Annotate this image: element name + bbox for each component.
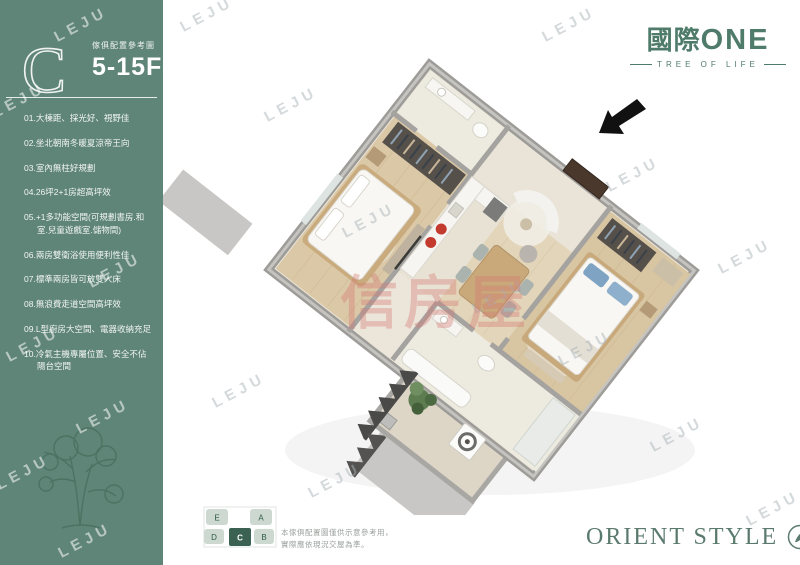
keyplan: E A D C B xyxy=(202,501,278,551)
feature-item: 08.無浪費走道空間高坪效 xyxy=(24,298,152,311)
disclaimer-line: 本傢俱配置圖僅供示意參考用， xyxy=(281,527,393,539)
divider xyxy=(6,97,157,98)
tagline-rule xyxy=(630,64,652,65)
tree-illustration-icon xyxy=(16,412,148,530)
feature-item: 05.+1多功能空間(可規劃書房.和室.兒童遊戲室.儲物間) xyxy=(24,211,152,237)
feature-item: 01.大棟距、採光好、視野佳 xyxy=(24,112,152,125)
leaf-badge-icon xyxy=(786,523,800,551)
floorplan-3d xyxy=(160,5,800,515)
disclaimer: 本傢俱配置圖僅供示意參考用， 實際應依現況交屋為準。 xyxy=(281,527,393,551)
keyplan-unit-d: D xyxy=(211,533,217,542)
plan-floors: 5-15F xyxy=(92,53,162,82)
disclaimer-line: 實際應依現況交屋為準。 xyxy=(281,539,393,551)
keyplan-unit-e: E xyxy=(214,514,219,523)
plan-header: 傢俱配置參考圖 5-15F xyxy=(92,40,162,82)
keyplan-unit-c-highlighted: C xyxy=(237,534,243,543)
feature-item: 06.兩房雙衛浴使用便利性佳 xyxy=(24,249,152,262)
feature-item: 07.標準兩房皆可放雙人床 xyxy=(24,273,152,286)
feature-item: 03.室內無柱好規劃 xyxy=(24,162,152,175)
tagline-rule xyxy=(764,64,786,65)
feature-item: 02.坐北朝南冬暖夏涼帝王向 xyxy=(24,137,152,150)
brand-en: ONE xyxy=(701,24,770,56)
brand-tagline: TREE OF LIFE xyxy=(630,60,786,69)
side-slab xyxy=(160,170,252,256)
brand-name: 國際ONE xyxy=(630,20,786,57)
tagline-text: TREE OF LIFE xyxy=(657,60,759,69)
keyplan-unit-b: B xyxy=(261,533,266,542)
footer-brand: ORIENT STYLE xyxy=(586,523,800,551)
footer-brand-text: ORIENT STYLE xyxy=(586,524,778,551)
feature-item: 09.L型廚房大空間、電器收納充足 xyxy=(24,323,152,336)
brand-logo: 國際ONE TREE OF LIFE xyxy=(630,20,786,69)
feature-list: 01.大棟距、採光好、視野佳 02.坐北朝南冬暖夏涼帝王向 03.室內無柱好規劃… xyxy=(24,112,152,385)
feature-item: 10.冷氣主機專屬位置、安全不佔陽台空間 xyxy=(24,348,152,374)
flyer-page: C 傢俱配置參考圖 5-15F 01.大棟距、採光好、視野佳 02.坐北朝南冬暖… xyxy=(0,0,800,565)
entry-arrow-icon xyxy=(599,99,646,134)
sidebar: C 傢俱配置參考圖 5-15F 01.大棟距、採光好、視野佳 02.坐北朝南冬暖… xyxy=(0,0,163,565)
keyplan-unit-a: A xyxy=(258,514,264,523)
brand-cjk: 國際 xyxy=(647,25,701,55)
plan-subtitle: 傢俱配置參考圖 xyxy=(92,40,162,51)
feature-item: 04.26坪2+1房超高坪效 xyxy=(24,186,152,199)
